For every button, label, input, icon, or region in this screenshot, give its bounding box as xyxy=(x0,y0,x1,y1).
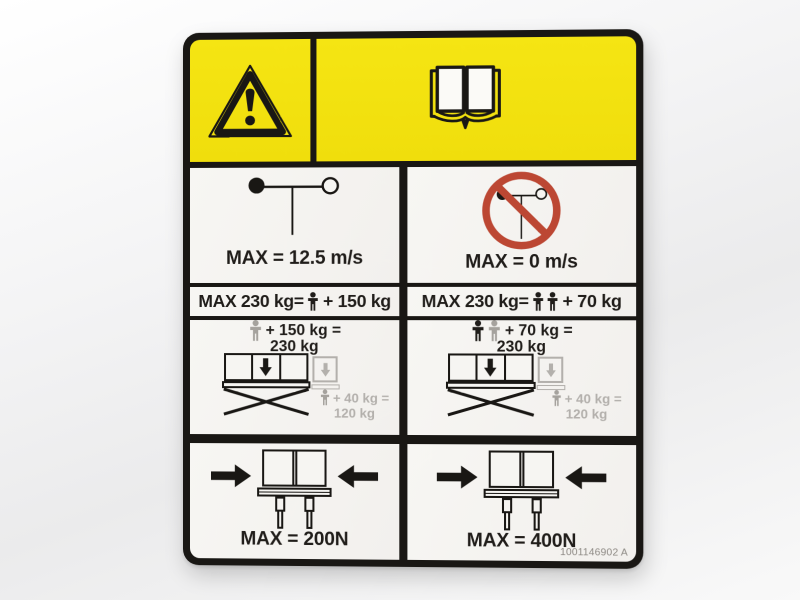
capacity-prefix: MAX 230 kg= xyxy=(198,291,304,312)
capacity-suffix: + 70 kg xyxy=(562,291,621,312)
anemometer-icon xyxy=(242,174,347,237)
load-equation: + 150 kg = 230 kg xyxy=(190,322,399,355)
platform-side-icon xyxy=(484,450,560,530)
side-force-right-cell: MAX = 400N 1001146902 A xyxy=(407,444,636,562)
capacity-banner-left: MAX 230 kg=+ 150 kg xyxy=(190,287,399,316)
down-arrow-icon xyxy=(484,359,497,377)
ext-line2: 120 kg xyxy=(566,406,608,421)
person-icon xyxy=(320,389,331,405)
side-force-figure xyxy=(437,450,606,531)
left-arrow-icon xyxy=(437,465,478,488)
photo-backdrop: { "decal": { "wind_allowed": { "caption"… xyxy=(0,0,800,600)
platform-deck xyxy=(257,487,331,496)
side-force-figure xyxy=(211,449,378,529)
warning-triangle-icon xyxy=(206,61,294,140)
scissor-legs xyxy=(448,389,534,416)
platform-legs xyxy=(501,498,541,531)
part-number: 1001146902 A xyxy=(560,547,628,559)
person-icon xyxy=(470,320,485,341)
platform-deck xyxy=(484,489,560,499)
person-icon xyxy=(307,292,320,311)
wind-row: MAX = 12.5 m/s MAX = 0 m/s xyxy=(190,166,636,283)
scissor-legs xyxy=(224,388,308,414)
no-wind-prohibition-icon xyxy=(472,169,570,251)
wind-max-caption: MAX = 12.5 m/s xyxy=(226,248,363,270)
person-icon xyxy=(248,320,263,341)
load-equation: + 70 kg = 230 kg xyxy=(407,322,636,356)
platform-side-icon xyxy=(257,449,331,529)
person-icon xyxy=(546,292,559,311)
capacity-banner-row: MAX 230 kg=+ 150 kg MAX 230 kg=+ 70 kg xyxy=(190,287,636,316)
read-manual-book-icon xyxy=(408,56,522,141)
down-arrow-icon xyxy=(260,358,273,376)
platform-rail xyxy=(262,449,326,486)
capacity-banner-right: MAX 230 kg=+ 70 kg xyxy=(407,287,636,316)
exclamation-mark xyxy=(246,89,255,112)
extension-deck xyxy=(538,357,564,383)
warning-cell xyxy=(190,39,310,162)
side-force-left-cell: MAX = 200N xyxy=(190,443,399,560)
platform-rail xyxy=(489,450,554,488)
load-diagram-right-cell: + 70 kg = 230 kg + 40 kg = 120 kg xyxy=(407,320,636,436)
extension-deck xyxy=(312,356,337,382)
load-diagram-row: + 150 kg = 230 kg + 40 kg = 120 kg xyxy=(190,320,636,436)
platform-legs xyxy=(275,497,314,529)
platform-rail xyxy=(224,353,308,381)
header-band xyxy=(190,36,636,162)
person-icon xyxy=(551,390,562,406)
platform-rail xyxy=(448,353,534,381)
load-line1: + 150 kg = xyxy=(266,322,342,340)
ext-line1: + 40 kg = xyxy=(565,391,622,406)
ext-line1: + 40 kg = xyxy=(333,390,389,405)
wind-allowed-cell: MAX = 12.5 m/s xyxy=(190,167,399,283)
person-icon xyxy=(532,292,545,311)
safety-decal: MAX = 12.5 m/s MAX = 0 m/s MAX 230 kg=+ … xyxy=(183,29,643,569)
ext-line2: 120 kg xyxy=(334,406,375,421)
extension-capacity-note: + 40 kg = 120 kg xyxy=(320,389,389,420)
wind-prohibited-cell: MAX = 0 m/s xyxy=(407,166,636,283)
left-arrow-icon xyxy=(211,464,251,487)
load-line1: + 70 kg = xyxy=(505,322,573,340)
scissor-platform-diagram xyxy=(448,353,542,415)
side-force-row: MAX = 200N MAX = 400N 1001146902 A xyxy=(190,443,636,562)
down-arrow-icon xyxy=(545,362,555,377)
manual-cell xyxy=(316,36,636,161)
wind-zero-caption: MAX = 0 m/s xyxy=(465,251,578,273)
force-caption: MAX = 200N xyxy=(240,528,348,551)
extension-capacity-note: + 40 kg = 120 kg xyxy=(551,390,621,422)
down-arrow-icon xyxy=(320,362,330,377)
capacity-prefix: MAX 230 kg= xyxy=(422,291,529,312)
capacity-suffix: + 150 kg xyxy=(323,291,391,312)
right-arrow-icon xyxy=(565,466,606,490)
scissor-platform-diagram xyxy=(224,353,316,414)
right-arrow-icon xyxy=(338,465,378,488)
load-diagram-left-cell: + 150 kg = 230 kg + 40 kg = 120 kg xyxy=(190,320,399,435)
